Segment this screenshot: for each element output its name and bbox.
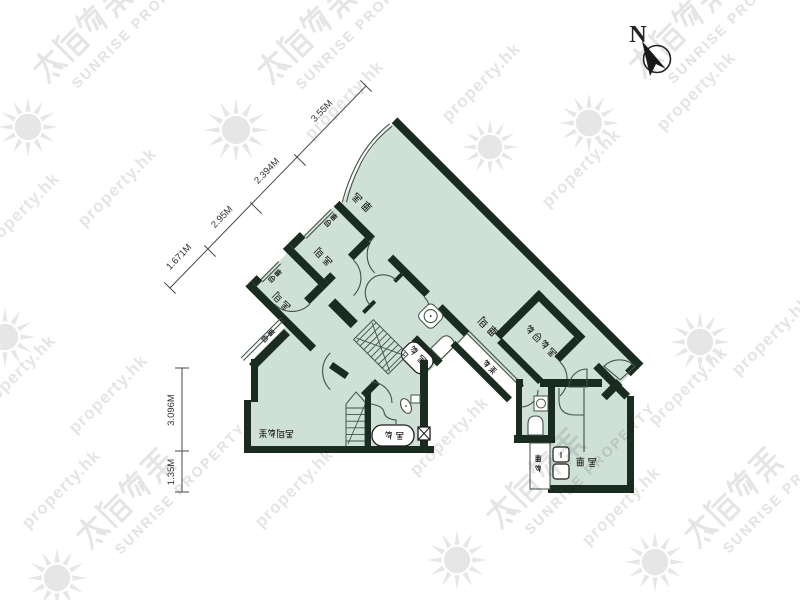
- svg-text:3.096M: 3.096M: [166, 394, 177, 426]
